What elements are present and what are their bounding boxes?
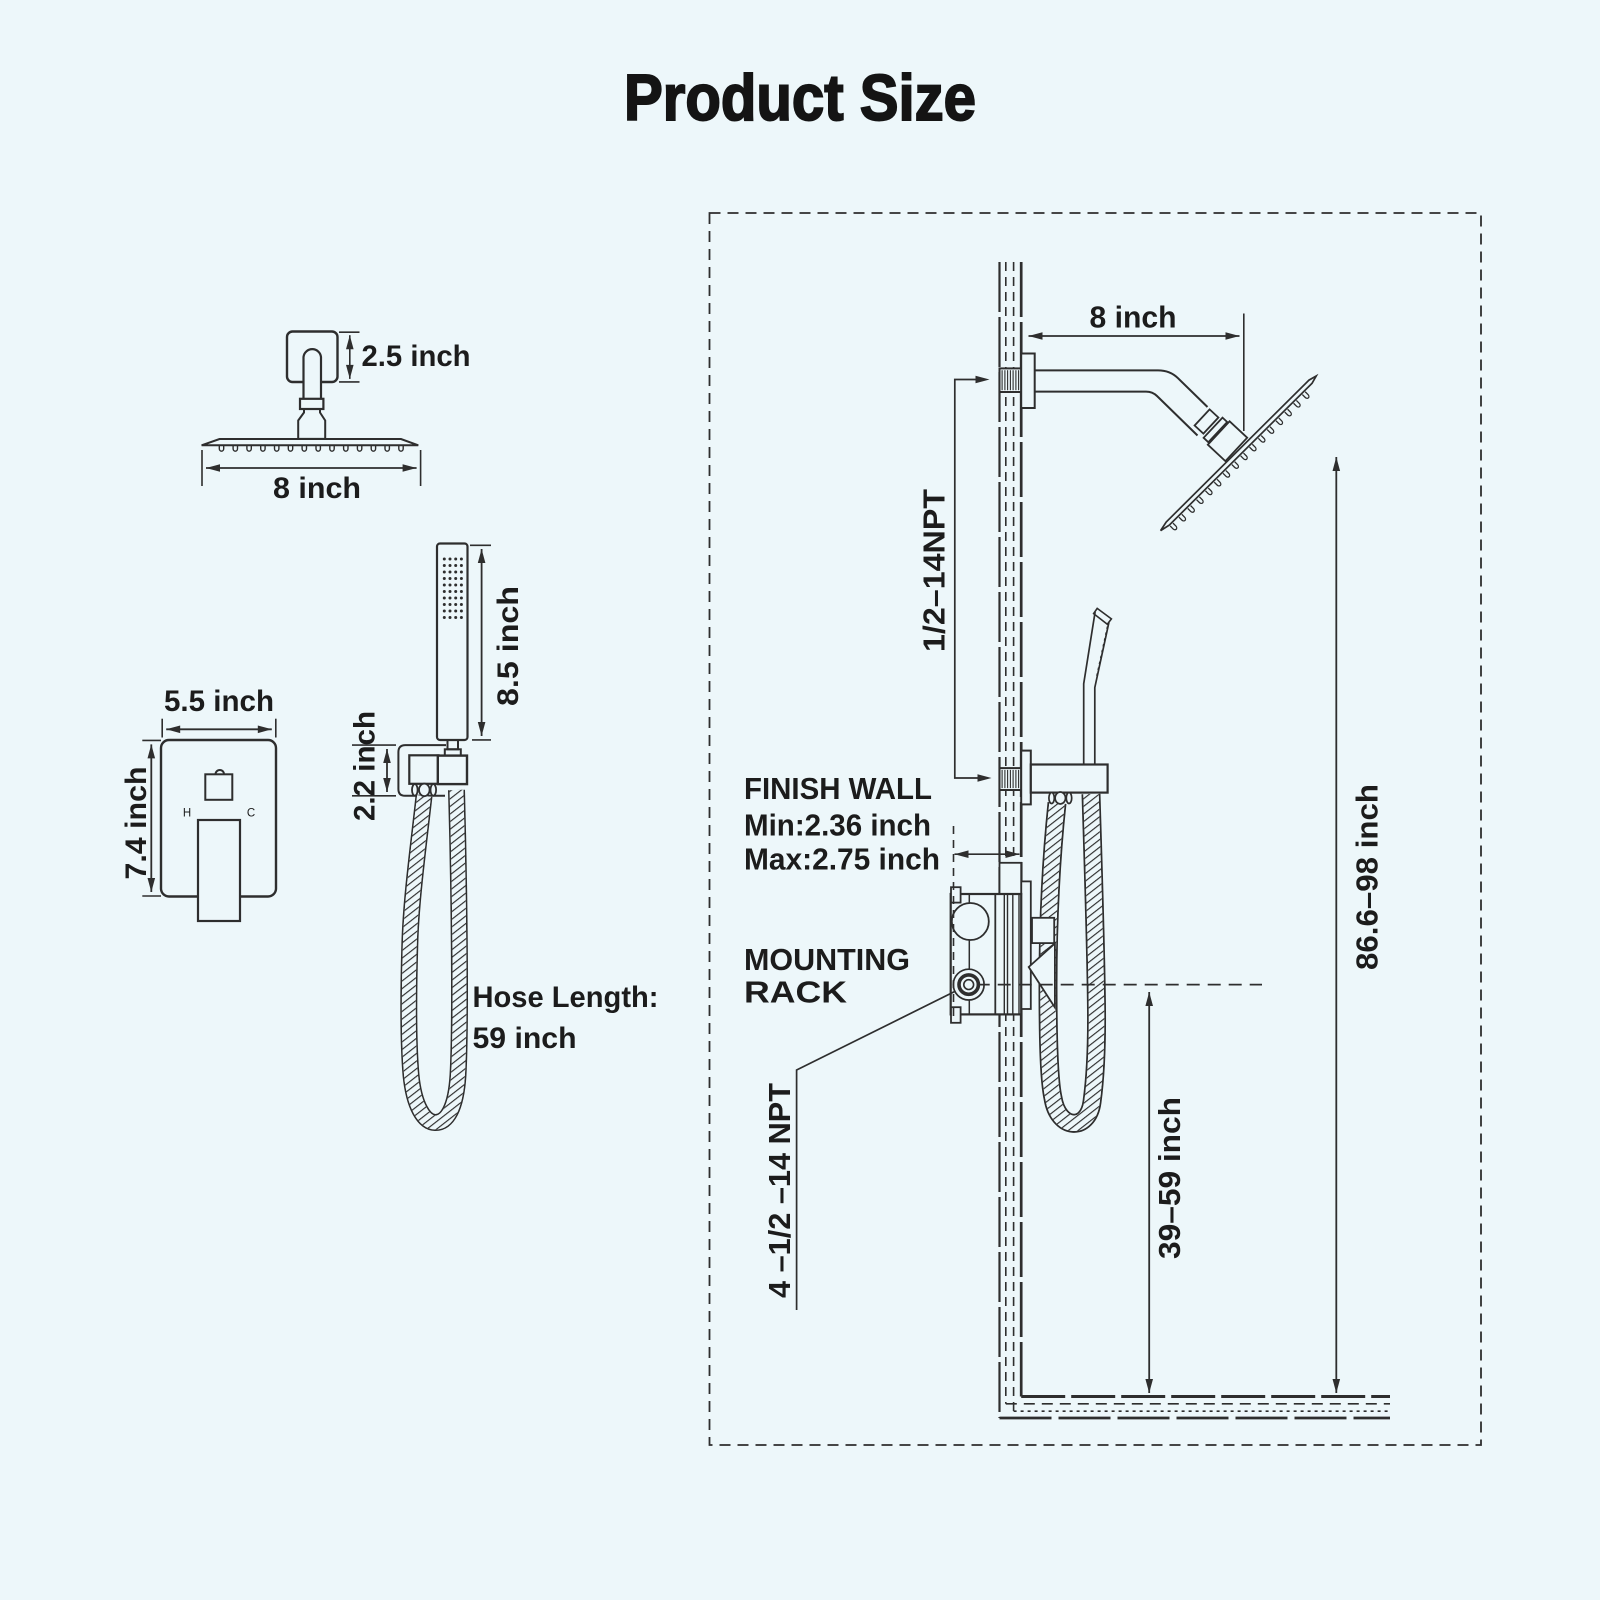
svg-text:FINISH WALL: FINISH WALL — [744, 772, 932, 806]
svg-text:H: H — [183, 808, 191, 820]
svg-text:5.5 inch: 5.5 inch — [164, 685, 274, 718]
svg-text:1/2–14NPT: 1/2–14NPT — [916, 489, 951, 652]
svg-text:8 inch: 8 inch — [1090, 300, 1177, 335]
svg-text:2.2 inch: 2.2 inch — [349, 711, 382, 821]
svg-text:8 inch: 8 inch — [273, 472, 361, 505]
svg-text:8.5 inch: 8.5 inch — [492, 586, 525, 706]
svg-text:RACK: RACK — [744, 976, 847, 1010]
svg-text:Product Size: Product Size — [624, 61, 976, 134]
svg-text:C: C — [247, 808, 255, 820]
svg-text:7.4 inch: 7.4 inch — [120, 767, 153, 880]
svg-text:39–59 inch: 39–59 inch — [1152, 1097, 1187, 1259]
svg-text:Min:2.36 inch: Min:2.36 inch — [744, 809, 931, 843]
svg-text:Hose Length:: Hose Length: — [473, 981, 659, 1014]
svg-text:59 inch: 59 inch — [473, 1022, 577, 1055]
svg-text:2.5 inch: 2.5 inch — [362, 340, 471, 373]
svg-text:4 –1/2 –14 NPT: 4 –1/2 –14 NPT — [762, 1083, 797, 1298]
svg-text:86.6–98 inch: 86.6–98 inch — [1350, 784, 1385, 970]
svg-text:Max:2.75 inch: Max:2.75 inch — [744, 843, 940, 877]
svg-text:MOUNTING: MOUNTING — [744, 943, 910, 977]
